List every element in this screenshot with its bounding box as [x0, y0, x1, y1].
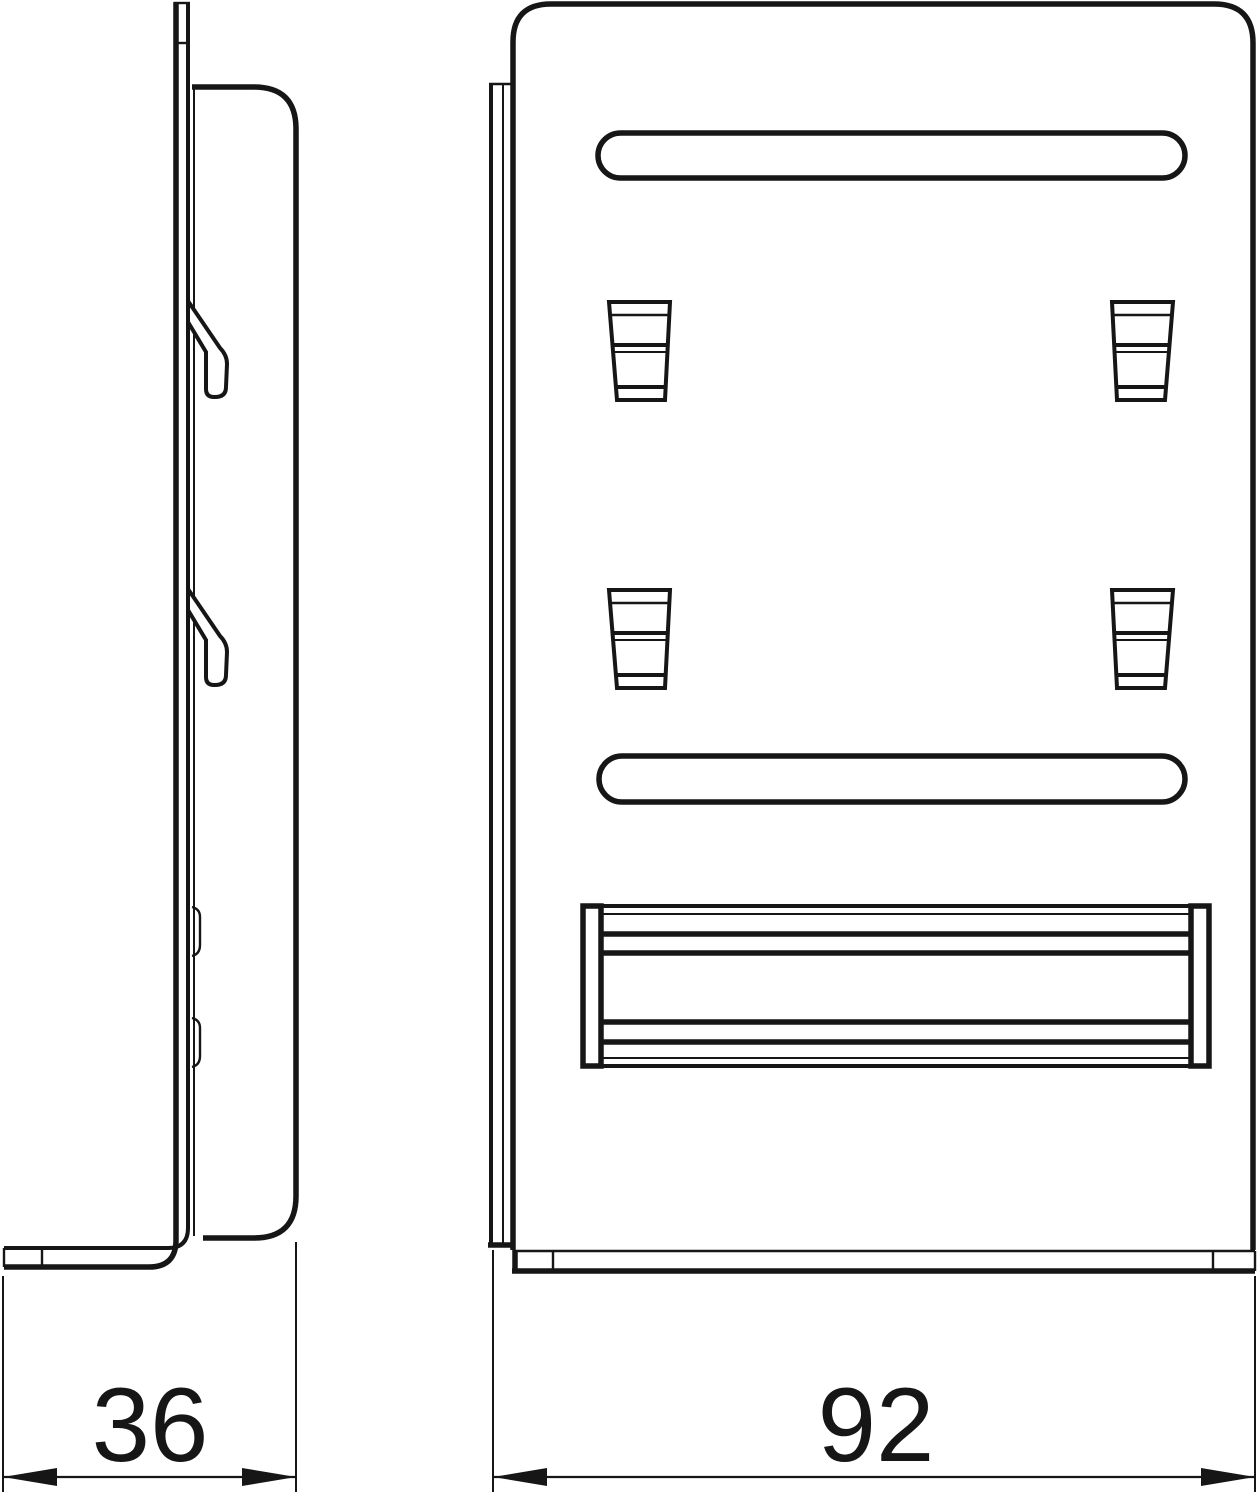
front-tab-row1-left	[609, 302, 670, 400]
front-tab-row1-right	[1112, 302, 1173, 400]
front-lower-slot	[599, 756, 1185, 802]
front-top-slot	[598, 133, 1185, 178]
rail-left-end-bar	[583, 906, 601, 1066]
dim36-arrow-right	[242, 1468, 296, 1486]
dim36-arrow-left	[3, 1468, 57, 1486]
front-tab-row2-left	[609, 590, 670, 688]
dim92-arrow-left	[493, 1468, 547, 1486]
front-view	[488, 4, 1255, 1271]
front-face-outline	[513, 4, 1253, 1250]
side-view	[4, 2, 296, 1267]
rail-right-end-bar	[1191, 906, 1209, 1066]
dim92-arrow-right	[1201, 1468, 1255, 1486]
front-tab-row2-right	[1112, 590, 1173, 688]
dimension-36: 36	[3, 1242, 296, 1492]
technical-drawing-page: 36 92	[0, 0, 1258, 1500]
side-plate-outer-edge	[4, 2, 176, 1267]
side-plate-inner-edge	[4, 2, 188, 1248]
front-rail	[583, 906, 1209, 1066]
front-bottom-band	[512, 1250, 1255, 1271]
dimension-92: 92	[493, 1250, 1255, 1492]
bracket-two-view-drawing: 36 92	[0, 0, 1258, 1500]
dim92-value: 92	[818, 1367, 935, 1484]
dim36-value: 36	[92, 1367, 209, 1484]
